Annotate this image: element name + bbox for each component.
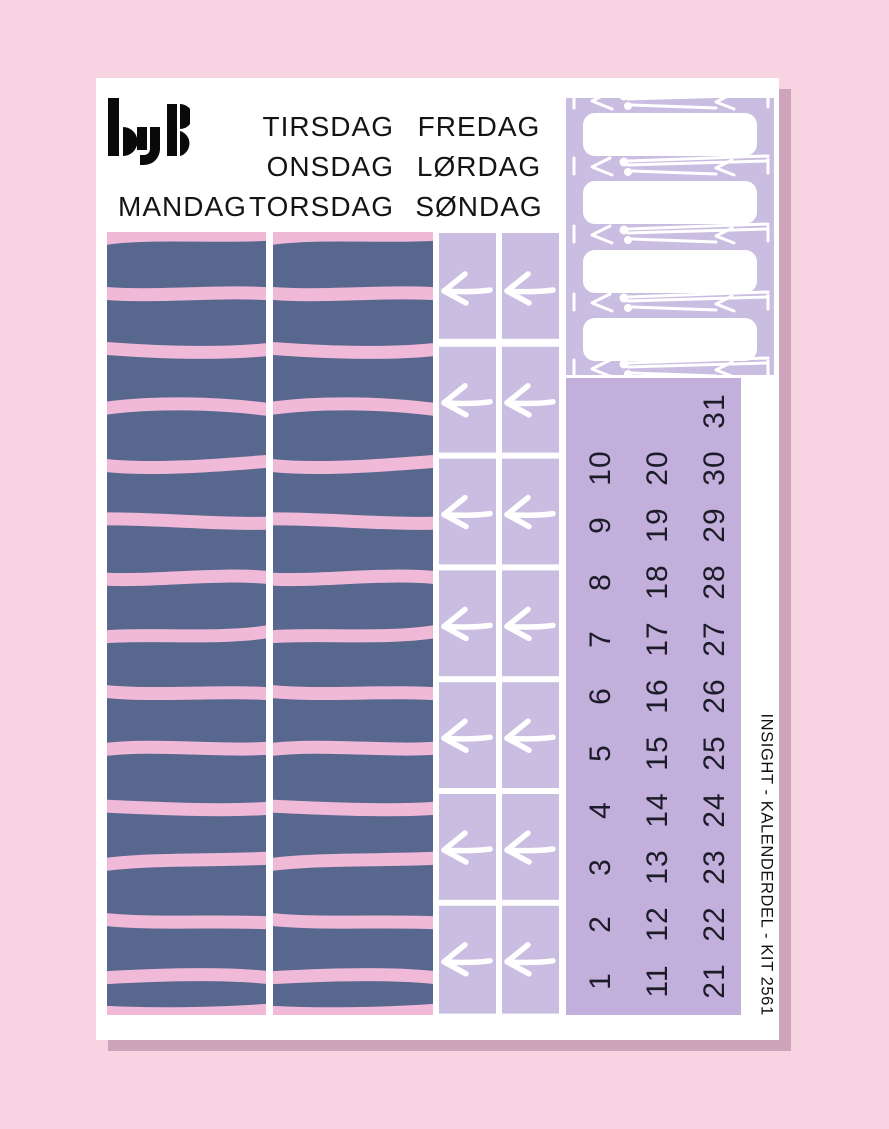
kit-label: INSIGHT - KALENDERDEL - KIT 2561 [757, 714, 777, 999]
washi-strip-column-1 [107, 232, 266, 1015]
date-number-22: 22 [688, 897, 741, 951]
date-number-15: 15 [631, 726, 685, 780]
date-number-12: 12 [631, 897, 685, 951]
date-number-7: 7 [574, 612, 628, 666]
date-number-26: 26 [688, 669, 741, 723]
logo-glyphs [108, 98, 190, 165]
date-number-21: 21 [688, 954, 741, 1008]
date-number-1: 1 [574, 954, 628, 1008]
date-number-10: 10 [574, 441, 628, 495]
date-number-17: 17 [631, 612, 685, 666]
date-number-13: 13 [631, 840, 685, 894]
date-number-19: 19 [631, 498, 685, 552]
date-number-4: 4 [574, 783, 628, 837]
label-stickers-block [566, 98, 774, 375]
label-sticker-4 [583, 318, 757, 361]
date-number-27: 27 [688, 612, 741, 666]
washi-strip-column-2 [273, 232, 433, 1015]
date-number-30: 30 [688, 441, 741, 495]
washi-stripes-pattern [273, 232, 433, 1015]
arrow-strip-column-2 [502, 232, 559, 1015]
sticker-sheet: MANDAG TIRSDAG ONSDAG TORSDAG FREDAG LØR… [96, 78, 779, 1040]
label-sticker-3 [583, 250, 757, 293]
label-sticker-2 [583, 181, 757, 224]
washi-stripes-pattern [107, 232, 266, 1015]
pin-doodle-pattern [566, 98, 774, 375]
date-number-16: 16 [631, 669, 685, 723]
day-label-fredag: FREDAG [379, 111, 579, 143]
date-number-28: 28 [688, 555, 741, 609]
date-number-29: 29 [688, 498, 741, 552]
label-sticker-1 [583, 113, 757, 156]
page-background: { "brand": { "logo_text": "byB" }, "day_… [0, 0, 889, 1129]
date-number-25: 25 [688, 726, 741, 780]
brand-logo [106, 98, 190, 166]
day-label-torsdag: TORSDAG [249, 191, 394, 223]
date-number-14: 14 [631, 783, 685, 837]
day-label-sondag: SØNDAG [379, 191, 579, 223]
day-label-tirsdag: TIRSDAG [263, 111, 394, 143]
date-number-23: 23 [688, 840, 741, 894]
date-number-3: 3 [574, 840, 628, 894]
date-number-18: 18 [631, 555, 685, 609]
left-arrow-strip [439, 232, 496, 1015]
day-label-mandag: MANDAG [118, 191, 247, 223]
arrow-strip-column-1 [439, 232, 496, 1015]
day-label-lordag: LØRDAG [379, 151, 579, 183]
day-label-onsdag: ONSDAG [267, 151, 394, 183]
date-numbers-block: 1234567891011121314151617181920212223242… [566, 378, 741, 1015]
left-arrow-strip [502, 232, 559, 1015]
date-number-8: 8 [574, 555, 628, 609]
date-number-11: 11 [631, 954, 685, 1008]
date-number-6: 6 [574, 669, 628, 723]
date-number-20: 20 [631, 441, 685, 495]
date-number-2: 2 [574, 897, 628, 951]
date-number-24: 24 [688, 783, 741, 837]
date-number-31: 31 [688, 384, 741, 438]
date-number-9: 9 [574, 498, 628, 552]
date-number-5: 5 [574, 726, 628, 780]
